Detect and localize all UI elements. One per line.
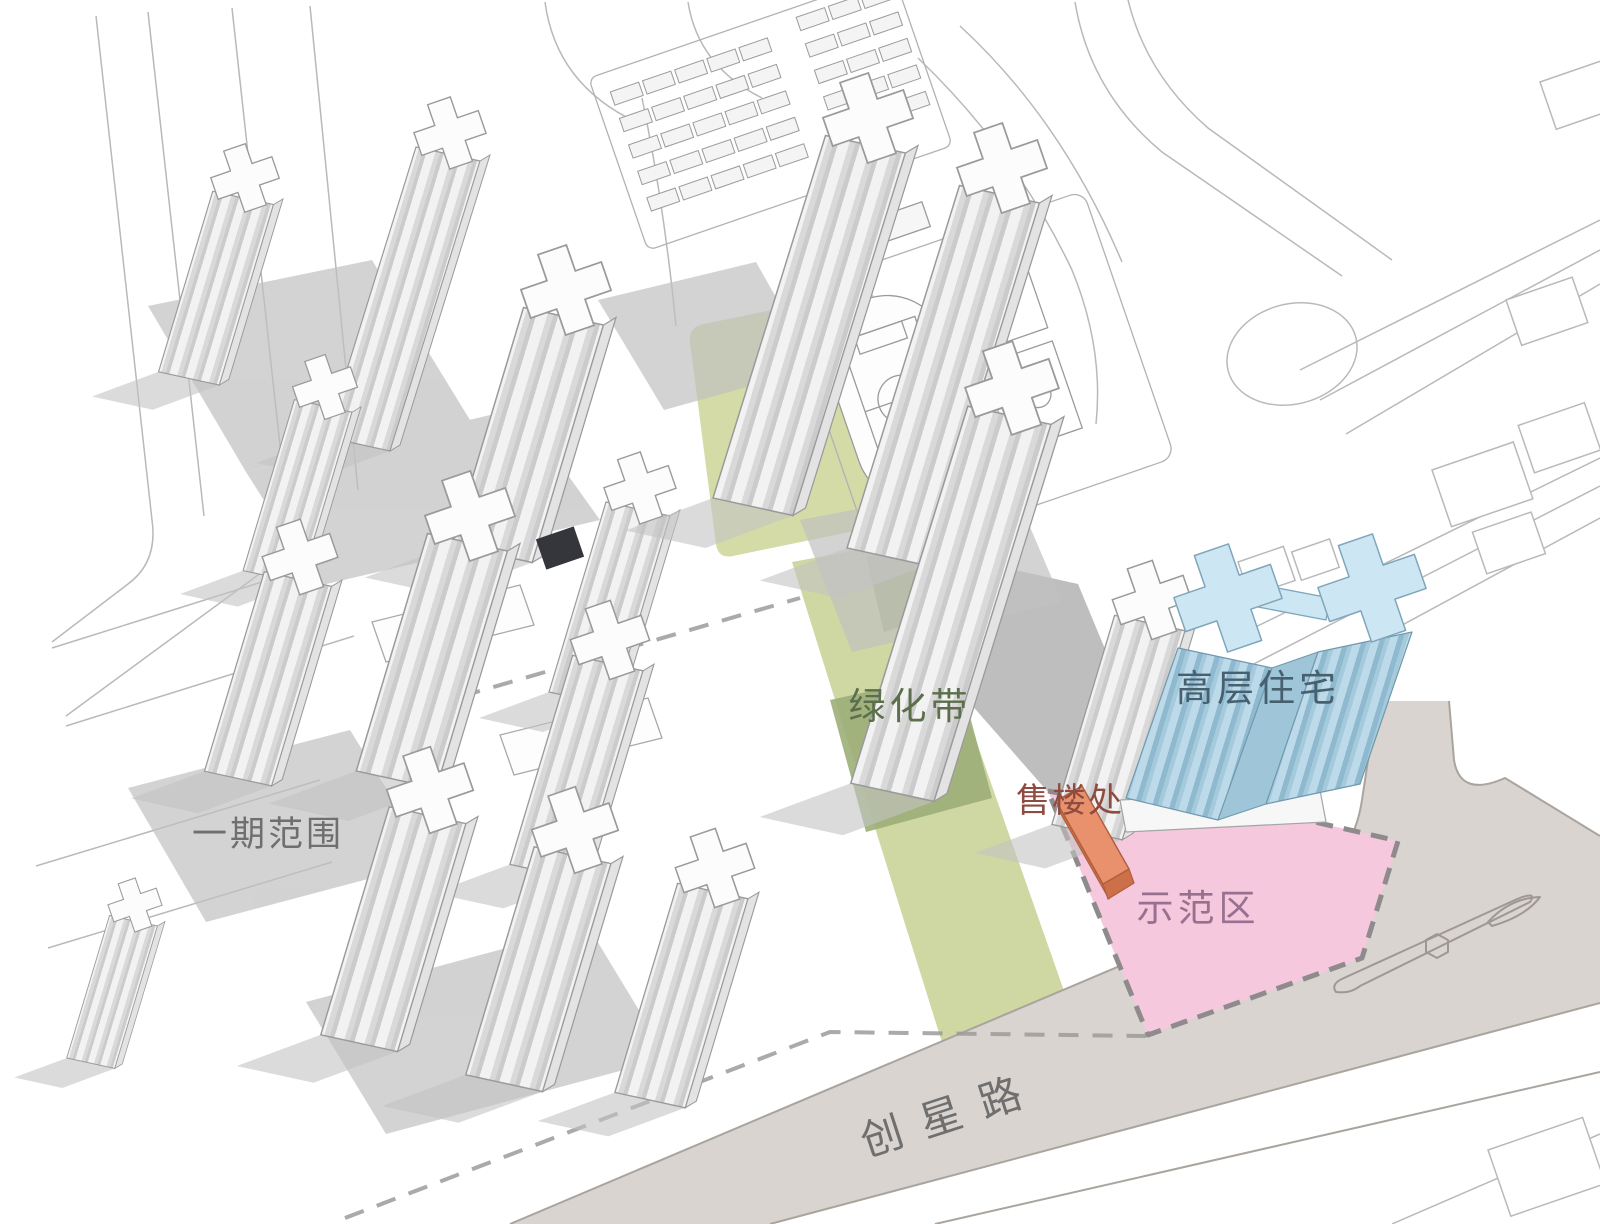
label-highrise: 高层住宅	[1176, 668, 1340, 709]
label-sales-office: 售楼处	[1016, 782, 1124, 820]
site-plan-figure: 一期范围 绿化带 高层住宅 售楼处 示范区 创星路	[0, 0, 1600, 1224]
tower	[14, 873, 167, 1088]
label-demo-area: 示范区	[1137, 888, 1260, 929]
site-plan: 一期范围 绿化带 高层住宅 售楼处 示范区 创星路	[0, 0, 1600, 1224]
label-green-belt: 绿化带	[849, 686, 972, 727]
label-phase1: 一期范围	[192, 815, 344, 854]
